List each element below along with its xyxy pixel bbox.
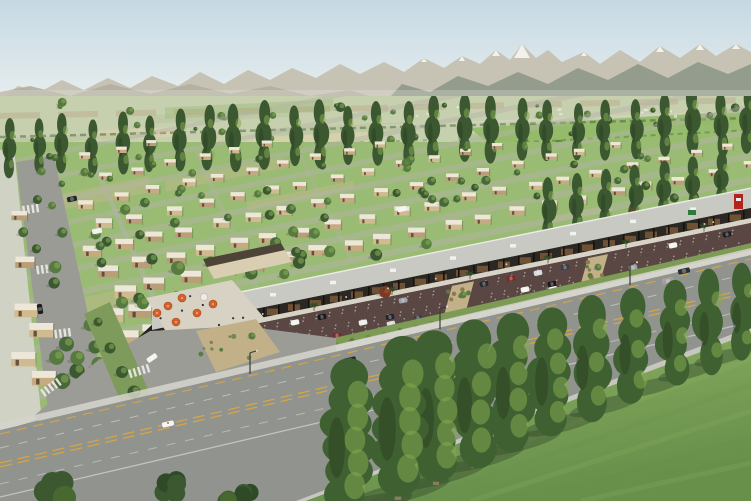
house bbox=[200, 153, 212, 161]
house bbox=[131, 167, 144, 175]
hvac-unit bbox=[570, 232, 576, 236]
house bbox=[246, 168, 259, 176]
house bbox=[610, 142, 621, 149]
house bbox=[340, 194, 355, 204]
pylon-sign-panel bbox=[736, 198, 741, 201]
house bbox=[293, 182, 308, 191]
house bbox=[231, 238, 250, 250]
house bbox=[246, 213, 263, 223]
hvac-unit bbox=[630, 220, 636, 224]
house bbox=[345, 240, 364, 252]
house bbox=[199, 198, 215, 208]
umbrella bbox=[172, 318, 180, 326]
poplar-tree bbox=[730, 263, 751, 361]
house bbox=[146, 140, 157, 147]
house bbox=[611, 187, 626, 196]
house bbox=[722, 144, 733, 151]
hvac-unit bbox=[330, 281, 336, 285]
house bbox=[462, 192, 477, 201]
house bbox=[424, 202, 440, 212]
house bbox=[362, 168, 375, 176]
house bbox=[671, 177, 685, 186]
house bbox=[429, 155, 441, 163]
house bbox=[116, 147, 128, 154]
house bbox=[11, 352, 36, 367]
house bbox=[78, 200, 94, 210]
house bbox=[14, 304, 38, 319]
house bbox=[229, 147, 241, 154]
house bbox=[115, 239, 134, 251]
umbrella bbox=[153, 309, 161, 317]
hvac-unit bbox=[390, 269, 396, 273]
house bbox=[359, 214, 376, 225]
house bbox=[145, 232, 163, 243]
house bbox=[79, 152, 91, 160]
house bbox=[408, 228, 426, 239]
pylon-sign-red bbox=[734, 194, 743, 209]
hvac-unit bbox=[270, 293, 276, 297]
house bbox=[181, 271, 202, 284]
house bbox=[512, 161, 525, 169]
house bbox=[556, 177, 570, 186]
house bbox=[475, 215, 492, 226]
house bbox=[277, 160, 290, 168]
house bbox=[164, 159, 177, 167]
house bbox=[146, 185, 161, 194]
house bbox=[509, 206, 525, 216]
sign-green bbox=[688, 210, 696, 215]
house bbox=[492, 143, 503, 150]
hvac-unit bbox=[450, 256, 456, 260]
house bbox=[143, 278, 165, 291]
house bbox=[126, 214, 143, 225]
house bbox=[167, 206, 183, 216]
house bbox=[231, 192, 246, 201]
house bbox=[529, 182, 543, 191]
house bbox=[262, 141, 273, 148]
house bbox=[331, 174, 345, 183]
house bbox=[744, 161, 751, 169]
house bbox=[375, 141, 386, 148]
umbrella bbox=[193, 309, 201, 317]
house bbox=[344, 148, 356, 155]
house bbox=[325, 220, 342, 231]
house bbox=[691, 150, 703, 157]
house bbox=[477, 168, 490, 176]
house bbox=[374, 188, 389, 197]
umbrella bbox=[164, 302, 172, 310]
aerial-render bbox=[0, 0, 751, 501]
house bbox=[574, 149, 586, 156]
house bbox=[492, 187, 507, 196]
house bbox=[196, 245, 215, 257]
house bbox=[175, 228, 193, 239]
house bbox=[211, 174, 225, 183]
house bbox=[15, 257, 35, 269]
community-rendering bbox=[0, 0, 751, 501]
house bbox=[11, 211, 28, 221]
umbrella bbox=[178, 294, 186, 302]
umbrella bbox=[200, 293, 207, 300]
house bbox=[183, 178, 197, 187]
hvac-unit bbox=[510, 244, 516, 248]
house bbox=[29, 323, 54, 338]
house bbox=[589, 170, 603, 178]
house bbox=[446, 220, 463, 231]
house bbox=[115, 192, 130, 201]
house bbox=[310, 153, 322, 161]
house bbox=[373, 234, 392, 245]
umbrella bbox=[209, 300, 217, 308]
house bbox=[96, 218, 113, 229]
house bbox=[546, 153, 558, 161]
